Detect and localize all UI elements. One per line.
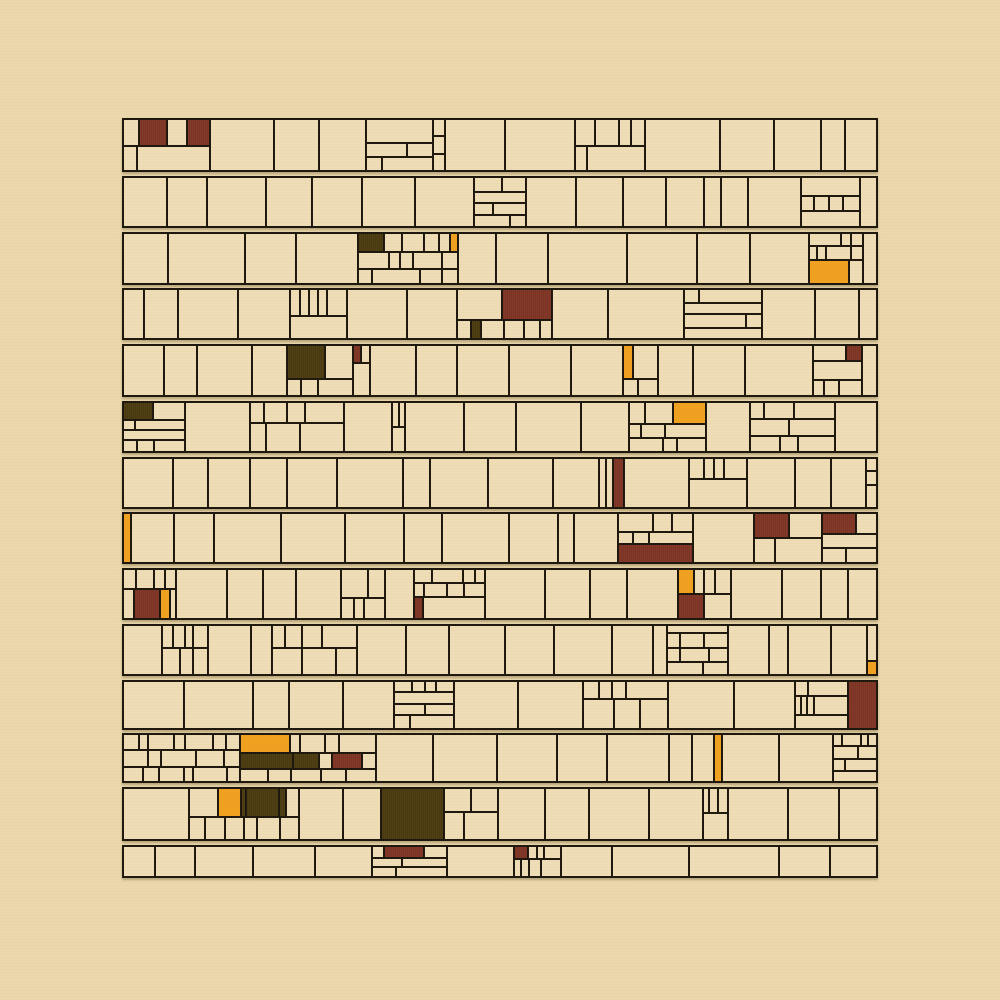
art-cell (443, 514, 508, 562)
art-cell (613, 847, 688, 876)
art-subrow (288, 346, 352, 378)
art-cell (859, 747, 876, 758)
art-subrow (814, 381, 860, 395)
art-cell (162, 751, 194, 766)
art-cell (246, 234, 296, 283)
art-cell (808, 697, 812, 714)
art-cell (253, 346, 286, 395)
art-cell (124, 421, 134, 429)
art-cell (288, 346, 324, 378)
art-cell (576, 120, 644, 170)
art-cell (247, 789, 278, 816)
art-cell (251, 424, 265, 451)
art-cell (600, 459, 612, 507)
art-cell (694, 514, 753, 562)
art-cell (775, 120, 820, 170)
art-cell (796, 716, 847, 728)
art-subrow (124, 751, 239, 766)
art-cell (445, 813, 463, 840)
art-subrow (668, 634, 727, 647)
art-cell (319, 380, 352, 395)
art-cell (124, 847, 154, 876)
art-cell (338, 459, 401, 507)
art-cell (206, 818, 225, 839)
art-subrow (124, 570, 175, 588)
art-cell (138, 147, 209, 170)
art-subrow (868, 662, 876, 674)
art-subrow (704, 789, 727, 812)
art-cell (685, 304, 761, 314)
art-cell (627, 682, 668, 698)
art-cell (211, 120, 273, 170)
art-subrow (630, 403, 705, 423)
art-cell (362, 346, 370, 362)
art-cell (802, 697, 806, 714)
art-cell (498, 735, 556, 781)
art-cell (393, 403, 397, 426)
art-cell (320, 120, 365, 170)
art-cell (310, 290, 317, 315)
art-subrow (834, 747, 876, 758)
art-subrow (823, 549, 876, 563)
art-cell (669, 682, 733, 728)
art-subrow (395, 705, 454, 715)
art-subrow (600, 459, 612, 507)
art-subrow (867, 459, 876, 471)
art-cell (181, 649, 192, 674)
art-subrow (624, 380, 657, 395)
art-subrow (251, 403, 343, 422)
art-cell (553, 290, 608, 338)
art-cell (443, 253, 457, 268)
art-cell (729, 626, 768, 674)
art-cell (465, 813, 497, 840)
art-subrow (867, 472, 876, 484)
art-cell (530, 860, 540, 876)
art-cell (155, 441, 184, 451)
art-cell (494, 204, 526, 214)
art-cell (124, 290, 143, 338)
art-cell (867, 459, 876, 507)
art-cell (359, 253, 387, 268)
art-cell (188, 120, 210, 145)
art-cell (735, 682, 794, 728)
art-cell (796, 459, 831, 507)
art-cell (373, 868, 395, 876)
art-cell (747, 315, 761, 326)
art-cell (156, 847, 194, 876)
art-subrow (393, 403, 403, 426)
art-cell (796, 682, 808, 695)
art-cell (864, 234, 876, 283)
art-cell (486, 570, 544, 618)
art-cell (185, 768, 192, 781)
art-cell (354, 346, 360, 362)
art-subrow (515, 860, 560, 876)
art-subrow (395, 716, 454, 727)
art-subrow (434, 120, 444, 135)
art-cell (145, 290, 177, 338)
art-cell (541, 321, 550, 339)
art-cell (434, 137, 444, 152)
art-cell (577, 178, 621, 226)
art-cell (716, 570, 730, 593)
art-cell (690, 847, 778, 876)
art-cell (124, 234, 167, 283)
art-cell (818, 247, 824, 259)
art-subrow (755, 514, 820, 537)
art-cell (190, 789, 217, 816)
art-cell (265, 403, 286, 422)
art-cell (393, 428, 403, 451)
art-cell (641, 700, 668, 728)
art-cell (608, 735, 668, 781)
art-cell (707, 403, 749, 451)
art-cell (426, 682, 435, 692)
art-cell (860, 290, 876, 338)
art-cell (664, 439, 676, 451)
art-cell (646, 120, 718, 170)
art-cell (823, 549, 846, 563)
art-cell (154, 403, 184, 419)
art-cell (395, 705, 425, 715)
art-cell (291, 290, 298, 315)
art-cell (489, 459, 552, 507)
art-subrow (690, 459, 745, 478)
art-subrow (241, 770, 376, 782)
art-cell (355, 599, 363, 618)
art-cell (416, 178, 473, 226)
art-subrow (359, 234, 457, 251)
art-cell (451, 234, 458, 251)
art-cell (434, 155, 444, 170)
art-cell (446, 120, 504, 170)
art-cell (286, 626, 300, 647)
art-cell (796, 697, 800, 714)
art-row (122, 401, 878, 453)
art-cell (732, 570, 781, 618)
art-cell (390, 253, 399, 268)
art-cell (596, 120, 618, 145)
art-cell (415, 598, 422, 618)
art-cell (619, 514, 653, 531)
art-cell (799, 437, 835, 451)
art-subrow (823, 514, 876, 533)
art-cell (124, 789, 188, 839)
art-cell (273, 626, 284, 647)
art-cell (301, 424, 343, 451)
art-cell (678, 439, 706, 451)
art-cell (424, 598, 484, 618)
art-subrow (342, 570, 385, 597)
art-row (122, 176, 878, 228)
art-cell (517, 403, 579, 451)
art-cell (294, 754, 317, 767)
art-cell (705, 459, 713, 478)
art-cell (395, 682, 411, 692)
art-cell (275, 120, 317, 170)
art-cell (291, 735, 299, 752)
art-cell (124, 120, 209, 170)
art-subrow (810, 234, 862, 246)
art-cell (654, 514, 671, 531)
art-cell (694, 346, 744, 395)
art-cell (175, 735, 184, 748)
art-cell (415, 584, 423, 596)
art-cell (359, 234, 457, 283)
art-cell (867, 486, 876, 506)
art-cell (440, 234, 449, 251)
art-cell (613, 682, 624, 698)
art-cell (163, 626, 171, 647)
art-cell (383, 158, 432, 170)
art-cell (562, 847, 610, 876)
art-cell (576, 120, 594, 145)
art-cell (751, 420, 788, 435)
art-row (122, 680, 878, 730)
art-cell (168, 178, 206, 226)
art-cell (823, 514, 855, 533)
art-cell (472, 789, 496, 810)
art-cell (746, 346, 812, 395)
art-cell (140, 735, 147, 748)
art-cell (408, 144, 432, 156)
art-cell (342, 599, 353, 618)
art-cell (431, 459, 486, 507)
art-cell (124, 403, 152, 419)
art-cell (510, 346, 571, 395)
art-cell (705, 570, 714, 593)
art-cell (584, 682, 598, 698)
art-subrow (796, 716, 847, 728)
art-row (122, 288, 878, 340)
art-subrow (393, 428, 403, 451)
art-cell (459, 234, 495, 283)
art-cell (751, 403, 763, 418)
art-cell (303, 649, 335, 674)
art-cell (503, 290, 551, 318)
art-cell (401, 253, 412, 268)
art-cell (464, 570, 474, 582)
art-cell (434, 735, 496, 781)
art-cell (297, 234, 357, 283)
art-cell (186, 735, 213, 748)
art-cell (414, 253, 441, 268)
art-cell (715, 735, 721, 781)
art-cell (475, 216, 509, 226)
art-cell (802, 197, 813, 211)
art-subrow (124, 768, 239, 781)
art-cell (830, 197, 842, 211)
art-subrow (124, 147, 209, 170)
art-cell (506, 120, 574, 170)
art-cell (328, 290, 346, 315)
art-cell (168, 120, 186, 145)
art-cell (840, 789, 876, 839)
art-cell (273, 649, 301, 674)
art-cell (515, 860, 520, 876)
art-subrow (619, 545, 692, 562)
art-subrow (685, 290, 761, 301)
art-subrow (584, 700, 667, 728)
art-cell (397, 868, 446, 876)
art-cell (525, 321, 539, 339)
art-cell (815, 197, 827, 211)
art-cell (499, 789, 544, 839)
art-cell (137, 570, 153, 588)
art-cell (814, 346, 860, 395)
art-cell (124, 768, 142, 781)
art-subrow (124, 403, 184, 419)
art-row (122, 568, 878, 620)
art-subrow (434, 155, 444, 170)
art-cell (634, 346, 657, 378)
art-cell (843, 735, 860, 745)
art-cell (790, 420, 835, 435)
art-subrow (124, 441, 184, 451)
art-cell (124, 178, 166, 226)
art-cell (373, 270, 420, 283)
art-cell (834, 735, 841, 745)
art-subrow (458, 321, 551, 339)
art-cell (174, 626, 184, 647)
art-subrow (755, 539, 820, 562)
art-cell (810, 261, 848, 282)
art-cell (783, 570, 820, 618)
art-cell (802, 178, 859, 226)
art-subrow (810, 261, 862, 282)
art-cell (850, 261, 862, 282)
art-subrow (834, 760, 876, 770)
art-subrow (619, 514, 692, 531)
art-cell (124, 735, 239, 781)
art-cell (549, 234, 626, 283)
art-subrow (834, 735, 876, 745)
art-cell (852, 247, 861, 259)
art-cell (313, 178, 361, 226)
art-cell (425, 584, 446, 596)
art-cell (136, 421, 184, 429)
art-cell (169, 234, 243, 283)
art-cell (685, 329, 761, 339)
art-cell (781, 437, 797, 451)
art-cell (219, 789, 239, 816)
art-cell (476, 570, 484, 582)
art-cell (780, 847, 828, 876)
art-cell (363, 754, 375, 767)
art-cell (515, 847, 527, 858)
art-cell (303, 626, 321, 647)
art-cell (751, 234, 808, 283)
art-cell (624, 380, 636, 395)
art-row (122, 624, 878, 676)
art-subrow (241, 754, 376, 767)
art-cell (209, 459, 249, 507)
art-subrow (342, 599, 385, 618)
art-subrow (291, 290, 346, 315)
art-cell (630, 403, 705, 451)
art-subrow (630, 425, 705, 437)
art-cell (367, 120, 432, 142)
art-cell (254, 682, 288, 728)
art-subrow (751, 403, 834, 418)
art-cell (227, 735, 239, 748)
art-cell (140, 120, 165, 145)
art-cell (323, 626, 356, 647)
art-cell (161, 590, 169, 618)
art-cell (408, 290, 455, 338)
art-cell (415, 570, 431, 582)
art-subrow (415, 584, 484, 596)
art-cell (646, 403, 672, 423)
art-subrow (685, 304, 761, 314)
art-cell (705, 595, 731, 618)
art-cell (620, 120, 629, 145)
art-cell (834, 735, 876, 781)
art-cell (624, 346, 657, 395)
art-cell (814, 362, 860, 378)
art-subrow (124, 735, 239, 748)
art-cell (124, 570, 175, 618)
art-cell (842, 234, 850, 246)
art-cell (171, 590, 176, 618)
art-cell (395, 682, 454, 728)
art-cell (367, 144, 406, 156)
art-cell (458, 346, 508, 395)
art-cell (241, 735, 376, 781)
art-cell (194, 768, 226, 781)
art-cell (417, 346, 456, 395)
art-cell (554, 459, 598, 507)
art-cell (319, 290, 326, 315)
art-cell (433, 570, 462, 582)
art-cell (241, 735, 290, 752)
art-cell (163, 626, 207, 674)
art-subrow (373, 859, 445, 866)
art-cell (572, 346, 622, 395)
art-cell (267, 424, 299, 451)
art-cell (403, 234, 423, 251)
art-subrow (395, 682, 454, 692)
art-subrow (475, 204, 526, 214)
art-cell (395, 716, 409, 727)
art-cell (165, 346, 196, 395)
art-cell (228, 570, 262, 618)
art-cell (789, 789, 838, 839)
art-cell (448, 847, 513, 876)
art-cell (698, 234, 750, 283)
art-cell (558, 735, 606, 781)
art-cell (614, 459, 623, 507)
art-cell (673, 514, 692, 531)
art-cell (600, 682, 611, 698)
art-cell (359, 270, 371, 283)
art-cell (475, 178, 526, 226)
art-subrow (367, 120, 432, 142)
art-cell (582, 403, 629, 451)
art-subrow (475, 193, 526, 203)
art-cell (373, 859, 400, 866)
art-cell (630, 403, 644, 423)
art-cell (124, 346, 163, 395)
art-cell (226, 818, 243, 839)
art-cell (847, 549, 876, 563)
art-cell (668, 634, 679, 647)
art-cell (437, 682, 453, 692)
art-cell (748, 459, 794, 507)
art-cell (867, 459, 876, 471)
art-cell (186, 626, 193, 647)
